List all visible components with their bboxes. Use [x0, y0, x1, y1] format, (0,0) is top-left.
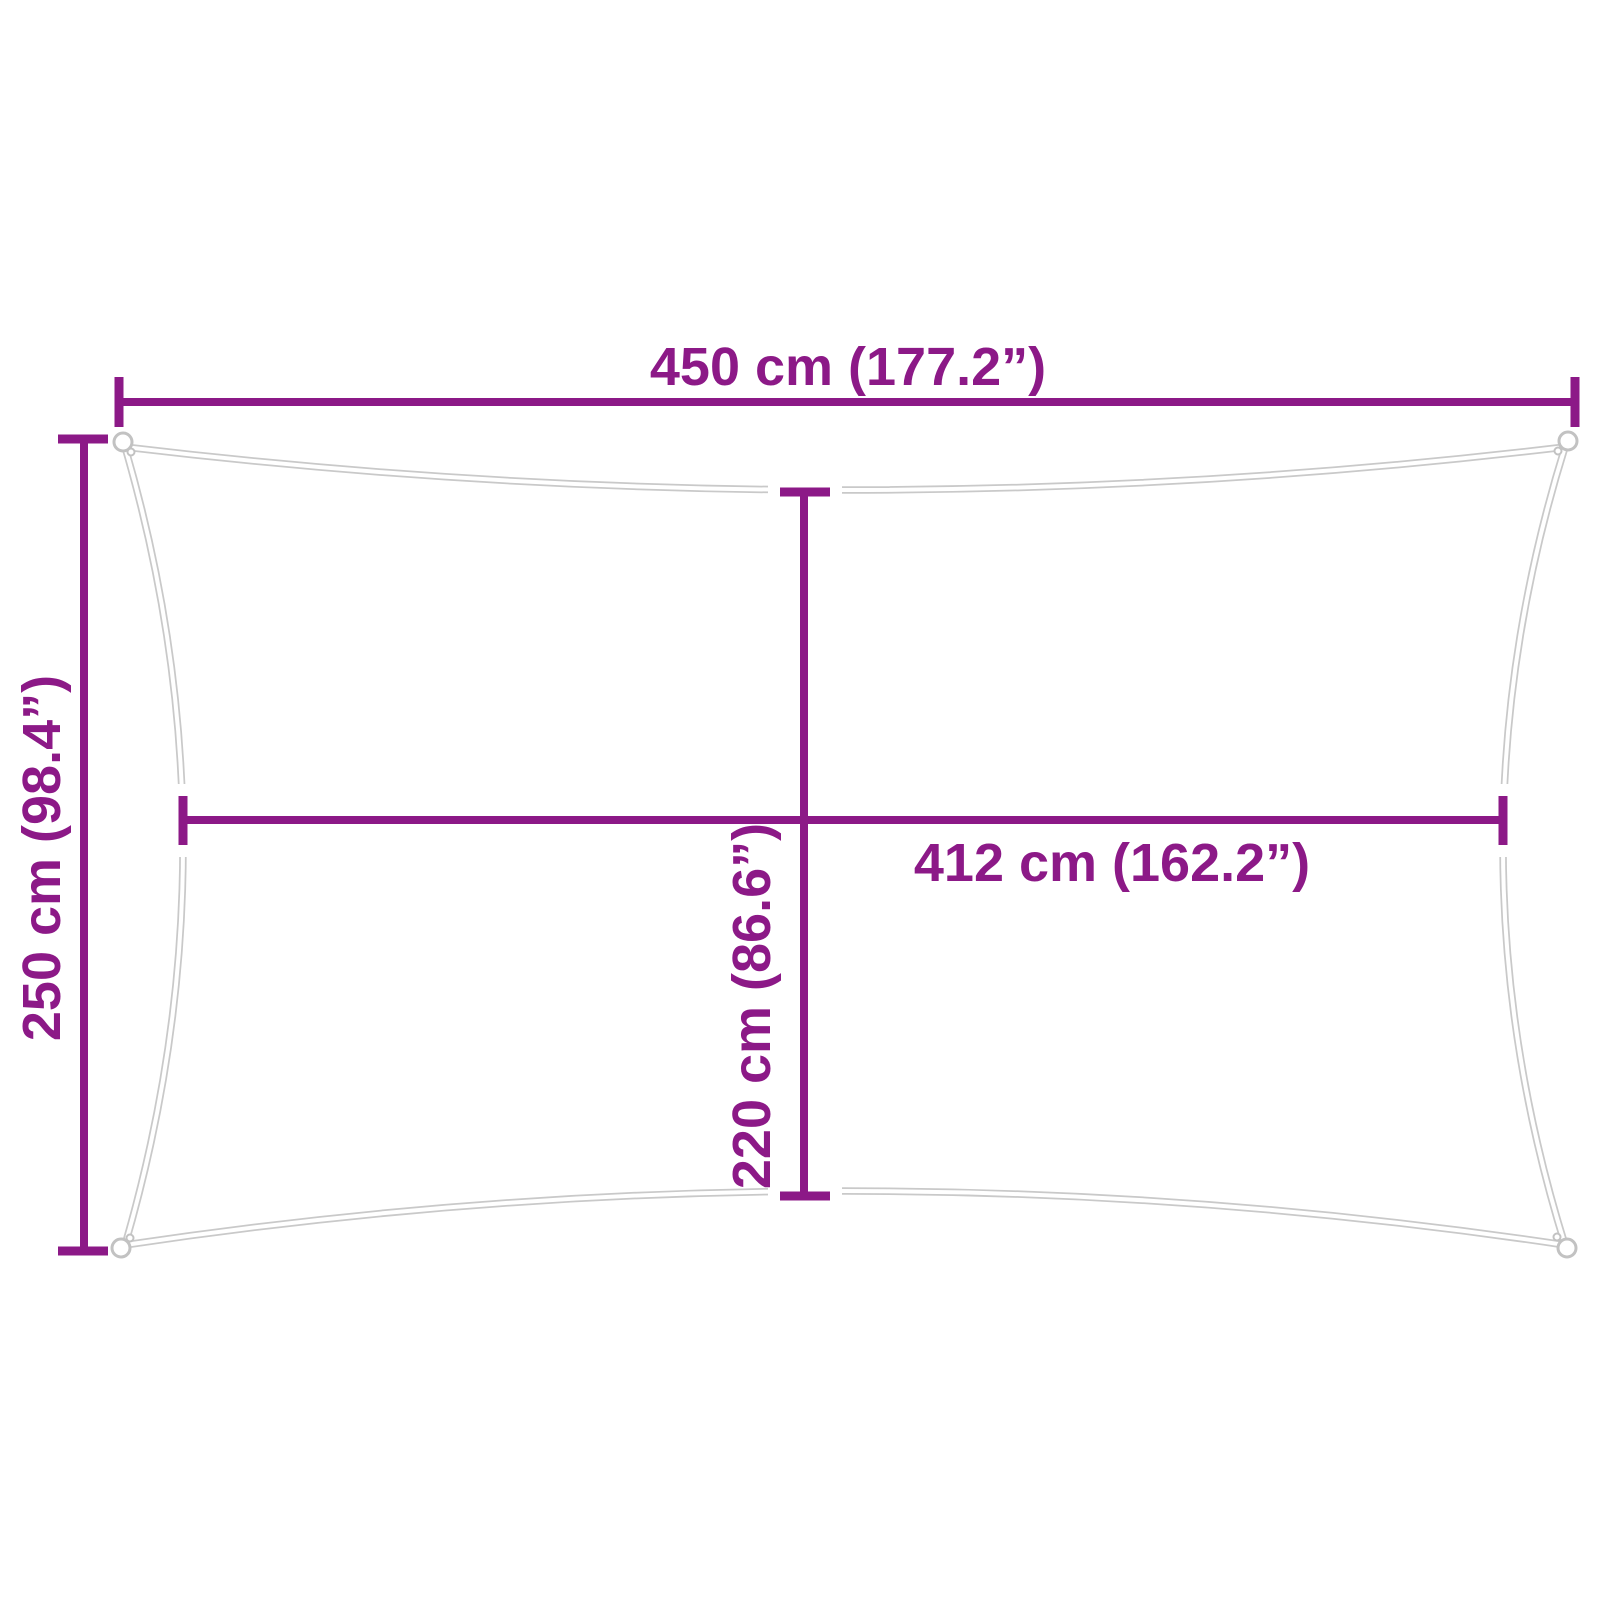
shade-sail-dimension-diagram: 450 cm (177.2”) 250 cm (98.4”) 412 cm (1…: [0, 0, 1600, 1600]
grommet-ring-icon: [1558, 1239, 1576, 1257]
grommet-ring-icon: [1559, 432, 1577, 450]
sail-outline: [125, 447, 1565, 1245]
grommet-rivet-icon: [1555, 448, 1562, 455]
grommet-top-right: [1555, 432, 1578, 455]
sail-outline-core: [125, 447, 1565, 1245]
outer-width-label: 450 cm (177.2”): [650, 337, 1046, 397]
mid-height-label: 220 cm (86.6”): [722, 823, 782, 1189]
grommet-rivet-icon: [127, 1235, 134, 1242]
grommet-rivet-icon: [128, 449, 135, 456]
diagram-svg: 450 cm (177.2”) 250 cm (98.4”) 412 cm (1…: [0, 0, 1600, 1600]
shade-sail: [112, 432, 1577, 1257]
grommet-top-left: [114, 433, 135, 456]
grommet-bottom-left: [112, 1235, 134, 1258]
outer-height-label: 250 cm (98.4”): [12, 675, 72, 1041]
grommet-rivet-icon: [1554, 1234, 1561, 1241]
mid-width-label: 412 cm (162.2”): [914, 833, 1310, 893]
grommet-ring-icon: [112, 1239, 130, 1257]
